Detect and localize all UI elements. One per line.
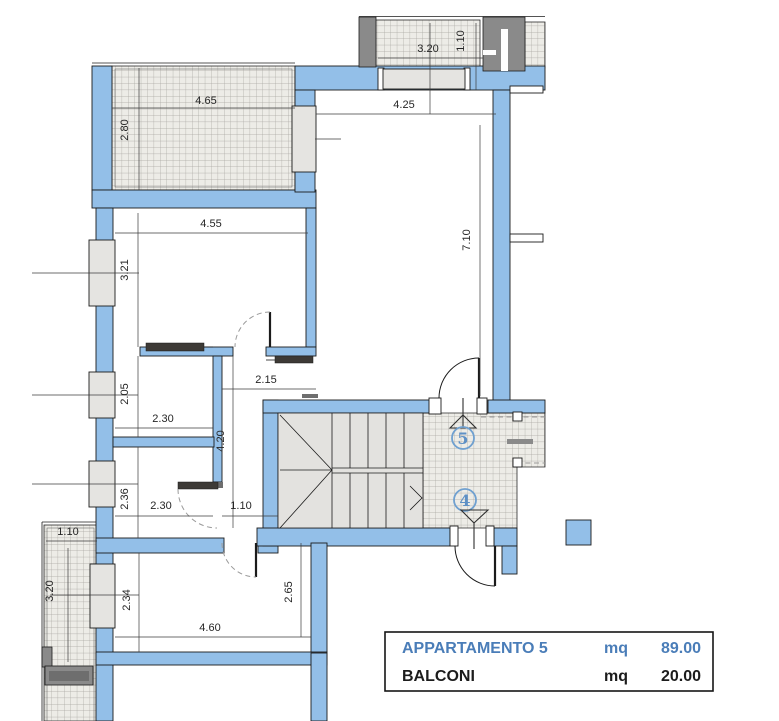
dim-label: 4.55 — [200, 218, 221, 230]
dim-label: 4.65 — [195, 95, 216, 107]
sliding-door — [146, 343, 204, 351]
dim-label: 1.10 — [230, 500, 251, 512]
dim-label: 4.60 — [199, 622, 220, 634]
dim-label: 3.20 — [417, 43, 438, 55]
door-swing-room-sw — [178, 489, 217, 528]
door-swing-room-s — [222, 543, 256, 577]
floor-plan-drawing: 4.65 2.80 3.20 1.10 4.25 7.10 4.55 3.21 … — [0, 0, 779, 721]
door-jamb — [450, 526, 458, 546]
dim-label: 2.36 — [119, 488, 131, 509]
balcony-north-right — [525, 22, 545, 68]
wall-cap — [302, 394, 318, 398]
dim-label: 2.80 — [119, 119, 131, 140]
lift-door-mark — [507, 439, 533, 444]
door-jamb — [513, 458, 522, 467]
door-swing-room-nw — [235, 312, 270, 347]
dim-label: 2.34 — [121, 589, 133, 610]
balcony-west — [44, 525, 97, 721]
wall-segment — [92, 66, 112, 190]
wall-stub-neighbor — [510, 86, 543, 93]
door-jamb — [513, 412, 522, 421]
dim-label: 3.21 — [119, 259, 131, 280]
door-leaf-room-sw — [178, 482, 218, 489]
stair-landing — [423, 413, 545, 528]
wall-partition — [306, 208, 316, 347]
legend-apartment-name: APPARTAMENTO 5 — [402, 640, 548, 657]
wall-segment — [494, 528, 517, 546]
wall-stairwell-north — [263, 400, 430, 413]
dim-label: 7.10 — [461, 229, 473, 250]
floor-marker-5-label: 5 — [457, 429, 468, 448]
wall-partition — [266, 347, 316, 356]
door-jamb — [477, 398, 487, 414]
wall-partition — [213, 356, 222, 482]
legend-balcony-name: BALCONI — [402, 668, 475, 685]
stair-flight — [278, 413, 423, 528]
legend-apartment-area: 89.00 — [661, 640, 701, 657]
wall-stub-neighbor — [510, 234, 543, 242]
dim-label: 2.65 — [283, 581, 295, 602]
pillar-west — [42, 647, 52, 667]
dim-label: 4.25 — [393, 99, 414, 111]
pillar-north-left — [359, 17, 376, 67]
dim-label: 2.30 — [152, 413, 173, 425]
door-swing-apartment4 — [455, 546, 495, 586]
floor-plan-page: 4.65 2.80 3.20 1.10 4.25 7.10 4.55 3.21 … — [0, 0, 779, 721]
floor-marker-4-label: 4 — [459, 491, 470, 510]
dim-label: 1.10 — [57, 526, 78, 538]
wall-partition — [311, 543, 327, 653]
balcony-door — [292, 106, 316, 172]
wall-segment — [488, 400, 545, 413]
wall-segment — [502, 546, 517, 574]
dim-label: 2.30 — [150, 500, 171, 512]
staircase — [278, 413, 423, 528]
wall-partition — [96, 538, 224, 553]
door-jamb — [486, 526, 494, 546]
pillar-square — [566, 520, 591, 545]
dim-label: 2.05 — [119, 383, 131, 404]
dim-label: 4.20 — [215, 430, 227, 451]
wall-partition — [113, 437, 214, 447]
wall-exterior-east — [493, 90, 510, 402]
dim-label: 3.20 — [44, 580, 56, 601]
legend-apartment-unit: mq — [604, 640, 628, 657]
balcony-northwest — [112, 66, 295, 190]
wall-stairwell-south — [257, 528, 450, 546]
door-swing-apartment5 — [439, 358, 479, 398]
window — [90, 564, 115, 628]
dim-label: 1.10 — [455, 30, 467, 51]
balcony-sliding-door — [383, 69, 465, 89]
dim-label: 2.15 — [255, 374, 276, 386]
legend: APPARTAMENTO 5 mq 89.00 BALCONI mq 20.00 — [385, 632, 713, 691]
legend-balcony-area: 20.00 — [661, 668, 701, 685]
wall-segment — [311, 653, 327, 721]
legend-balcony-unit: mq — [604, 668, 628, 685]
sliding-door — [275, 356, 313, 363]
wall-stairwell-west — [263, 400, 278, 546]
door-jamb — [429, 398, 441, 414]
wall-partition — [96, 652, 327, 665]
wall-segment — [92, 190, 316, 208]
